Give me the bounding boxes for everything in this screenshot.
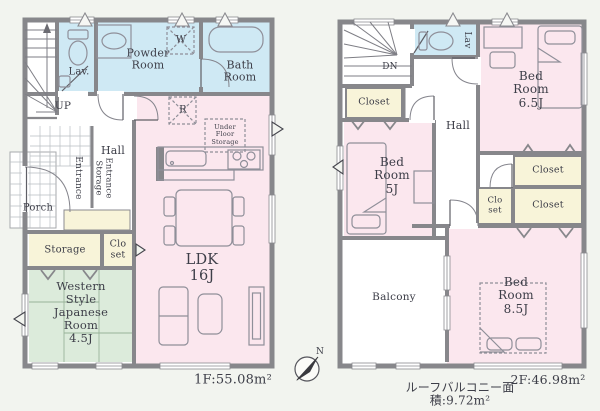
label-hall-2f: Hall — [446, 120, 470, 132]
porch-tiles — [10, 152, 56, 228]
label-bath-room: Bath Room — [224, 60, 257, 85]
label-closet-stairs: Closet — [358, 98, 390, 109]
floor2-plan — [333, 13, 587, 369]
label-porch: Porch — [23, 202, 53, 213]
label-storage-1f: Storage — [44, 244, 85, 255]
label-ldk: LDK 16J — [186, 252, 219, 284]
label-lav-2f: Lav — [462, 31, 472, 48]
compass — [295, 357, 319, 381]
label-washer-symbol: W — [176, 34, 186, 45]
label-bedroom-65: Bed Room 6.5J — [513, 70, 549, 110]
label-stairs-dn: DN — [382, 62, 398, 72]
label-area-1f: 1F:55.08m² — [194, 374, 272, 389]
label-closet-lower: Closet — [532, 201, 564, 212]
floorplan-drawing — [0, 0, 600, 411]
label-powder-room: Powder Room — [126, 48, 169, 73]
label-fridge-symbol: R — [179, 104, 187, 115]
label-stairs-up: UP — [55, 101, 71, 113]
label-closet-small: Clo set — [488, 196, 503, 215]
label-bedroom-85: Bed Room 8.5J — [498, 276, 534, 316]
label-lav-1f: Lav. — [68, 66, 89, 77]
label-closet-1f: Clo set — [110, 239, 127, 260]
label-western-room: Western Style Japanese Room 4.5J — [54, 280, 108, 344]
label-entrance: Entrance — [73, 156, 83, 199]
label-balcony: Balcony — [372, 292, 416, 304]
label-bedroom-5: Bed Room 5J — [374, 156, 410, 196]
label-entrance-storage: Entrance Storage — [93, 157, 112, 198]
label-closet-upper: Closet — [532, 166, 564, 177]
label-roof-balcony-area: ルーフバルコニー面積:9.72m² — [390, 382, 530, 409]
label-compass-north: N — [316, 347, 324, 357]
label-under-floor-storage: Under Floor Storage — [211, 124, 238, 146]
floorplan-canvas: Lav. Powder Room Bath Room UP Hall Porch… — [0, 0, 600, 411]
label-hall-1f: Hall — [101, 145, 125, 157]
